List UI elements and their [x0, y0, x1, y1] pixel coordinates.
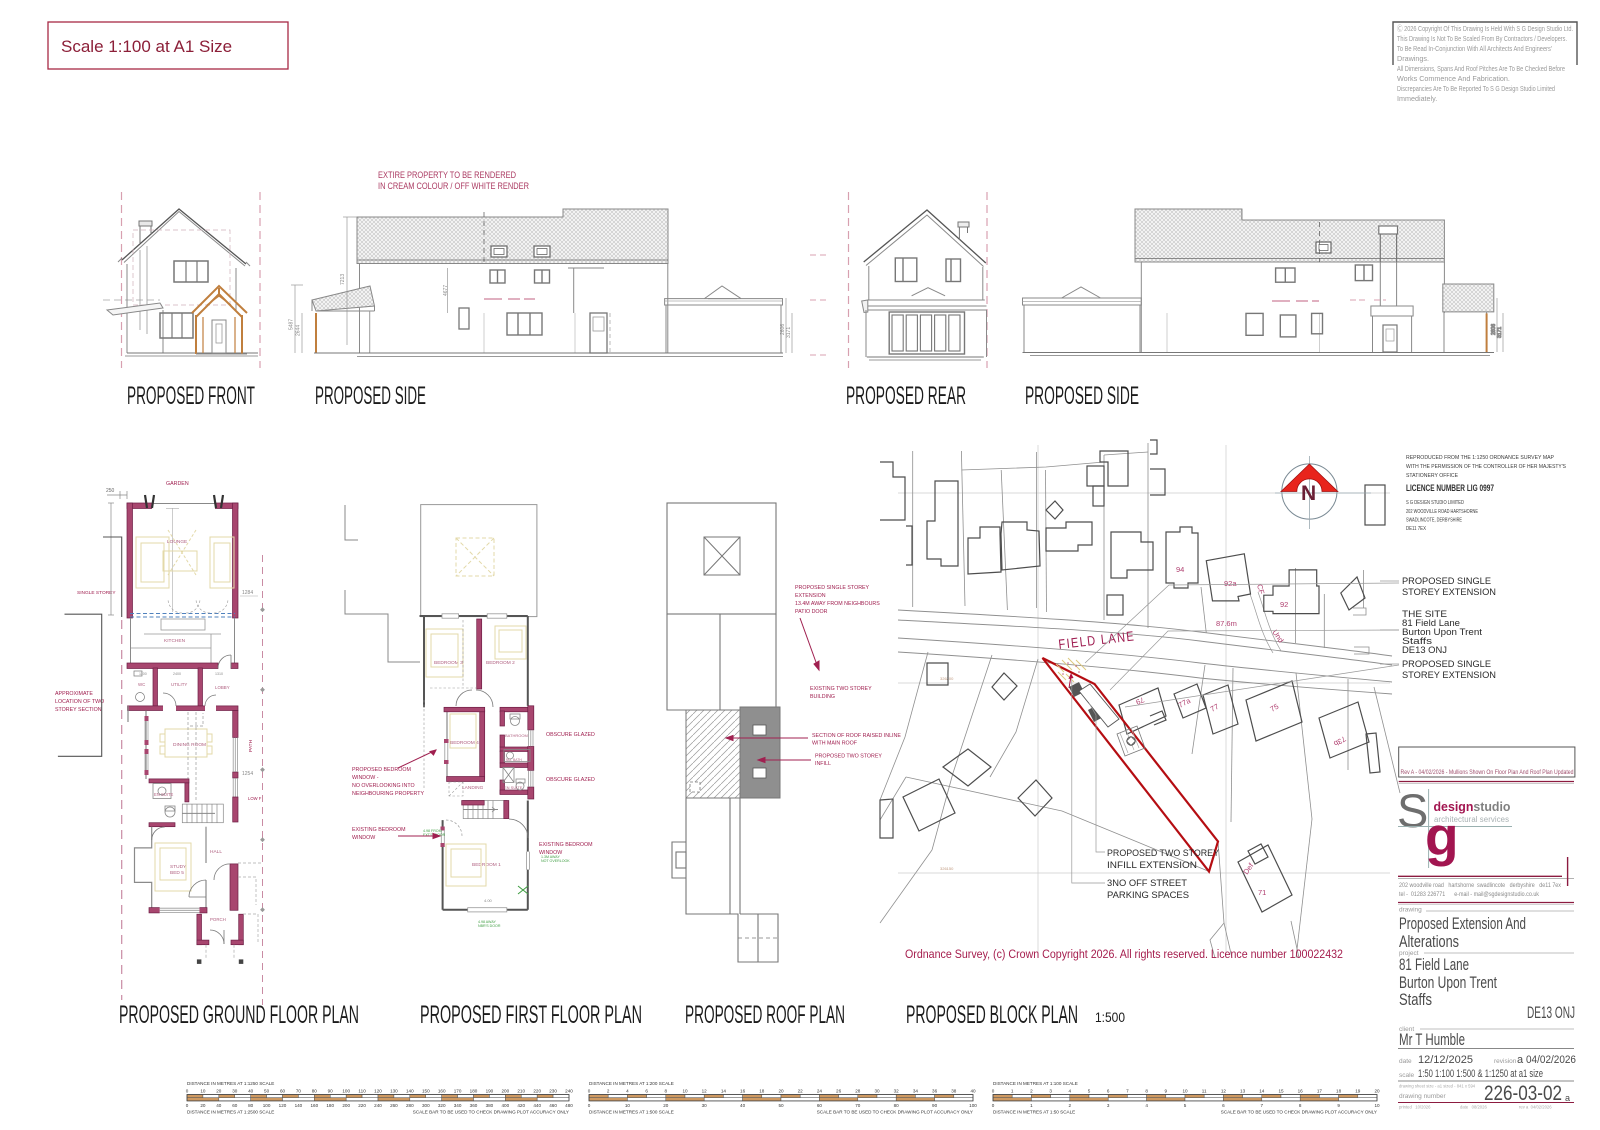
svg-text:date: date	[1399, 1058, 1412, 1065]
svg-text:STUDY: STUDY	[170, 864, 187, 870]
svg-text:1284: 1284	[242, 590, 253, 596]
svg-text:This Drawing Is Not To Be Scal: This Drawing Is Not To Be Scaled From By…	[1397, 34, 1567, 43]
svg-text:240: 240	[565, 1089, 573, 1094]
svg-text:PARKING SPACES: PARKING SPACES	[1107, 890, 1189, 900]
svg-text:71: 71	[1258, 888, 1266, 897]
svg-text:16: 16	[1298, 1089, 1304, 1094]
svg-text:226-03-02: 226-03-02	[1484, 1082, 1562, 1105]
svg-text:EXISTING BEDROOM: EXISTING BEDROOM	[539, 842, 593, 848]
svg-text:tel - 01283 226771 e-mai: tel - 01283 226771 e-mail - mail@sgdesig…	[1399, 891, 1540, 898]
svg-text:SCALE BAR TO BE USED TO CHECK: SCALE BAR TO BE USED TO CHECK DRAWING PL…	[1221, 1110, 1377, 1115]
svg-text:WITH MAIN ROOF: WITH MAIN ROOF	[812, 741, 858, 747]
svg-text:DISTANCE IN METRES AT 1:200 SC: DISTANCE IN METRES AT 1:200 SCALE	[589, 1081, 674, 1086]
svg-text:1:50 1:100 1:500 & 1:1250: 1:50 1:100 1:500 & 1:1250 at a1 size	[1418, 1068, 1543, 1080]
svg-text:8: 8	[665, 1089, 668, 1094]
svg-text:EN SUITE: EN SUITE	[154, 792, 174, 797]
svg-text:PROPOSED BEDROOM: PROPOSED BEDROOM	[352, 767, 411, 773]
svg-text:240: 240	[374, 1103, 382, 1108]
svg-text:DE13 ONJ: DE13 ONJ	[1527, 1004, 1575, 1022]
svg-text:18: 18	[1336, 1089, 1342, 1094]
svg-text:HALL: HALL	[210, 849, 222, 855]
svg-text:Scale 1:100 at A1 Size: Scale 1:100 at A1 Size	[61, 37, 232, 56]
svg-text:PROPOSED BLOCK PLAN: PROPOSED BLOCK PLAN	[906, 1001, 1078, 1029]
svg-text:220: 220	[533, 1089, 541, 1094]
svg-text:130: 130	[390, 1089, 398, 1094]
svg-text:SCALE BAR TO BE USED TO CHECK: SCALE BAR TO BE USED TO CHECK DRAWING PL…	[413, 1110, 569, 1115]
svg-text:12: 12	[702, 1089, 708, 1094]
svg-text:180: 180	[470, 1089, 478, 1094]
svg-text:APPROXIMATE: APPROXIMATE	[55, 691, 93, 697]
svg-text:202 WOODVILLE ROAD HARTSHORNE: 202 WOODVILLE ROAD HARTSHORNE	[1406, 509, 1478, 515]
svg-text:PROPOSED ROOF PLAN: PROPOSED ROOF PLAN	[685, 1001, 845, 1029]
svg-text:EXTENSION: EXTENSION	[795, 593, 826, 599]
svg-text:2: 2	[1069, 1103, 1072, 1108]
svg-text:NEIGHBOURING PROPERTY: NEIGHBOURING PROPERTY	[352, 791, 424, 797]
svg-text:150: 150	[422, 1089, 430, 1094]
svg-text:10: 10	[1374, 1103, 1380, 1108]
svg-text:BEDROOM 4: BEDROOM 4	[450, 740, 479, 746]
svg-text:300: 300	[422, 1103, 430, 1108]
svg-text:0: 0	[186, 1103, 189, 1108]
svg-text:1310: 1310	[215, 672, 223, 676]
svg-text:13: 13	[1240, 1089, 1246, 1094]
svg-text:DISTANCE IN METRES AT 1:2500 S: DISTANCE IN METRES AT 1:2500 SCALE	[187, 1110, 274, 1115]
svg-text:81 Field Lane: 81 Field Lane	[1399, 956, 1469, 974]
svg-text:40: 40	[740, 1103, 746, 1108]
svg-text:KITCHEN: KITCHEN	[164, 638, 186, 644]
svg-text:4677: 4677	[443, 285, 449, 296]
svg-text:PROPOSED SINGLE: PROPOSED SINGLE	[1402, 659, 1491, 670]
svg-text:30: 30	[702, 1103, 708, 1108]
svg-text:Proposed Extension And: Proposed Extension And	[1399, 915, 1526, 933]
svg-text:260: 260	[390, 1103, 398, 1108]
svg-text:INFILL: INFILL	[815, 761, 831, 767]
svg-text:EXISTING TWO STOREY: EXISTING TWO STOREY	[810, 686, 872, 692]
svg-text:OBSCURE GLAZED: OBSCURE GLAZED	[546, 777, 595, 783]
svg-text:20: 20	[1374, 1089, 1380, 1094]
svg-text:140: 140	[295, 1103, 303, 1108]
svg-text:Staffs: Staffs	[1399, 991, 1432, 1009]
svg-text:400: 400	[501, 1103, 509, 1108]
svg-text:date 08/2026: date 08/2026	[1460, 1105, 1487, 1110]
svg-text:PROPOSED FRONT: PROPOSED FRONT	[127, 382, 255, 410]
svg-text:100: 100	[342, 1089, 350, 1094]
svg-text:50: 50	[778, 1103, 784, 1108]
svg-text:drawing: drawing	[1399, 907, 1422, 914]
svg-text:DISTANCE IN METRES AT 1:1250 S: DISTANCE IN METRES AT 1:1250 SCALE	[187, 1081, 274, 1086]
svg-text:1100: 1100	[139, 672, 147, 676]
svg-text:3: 3	[1049, 1089, 1052, 1094]
svg-text:160: 160	[438, 1089, 446, 1094]
svg-text:0: 0	[588, 1103, 591, 1108]
svg-text:BEDROOM 3: BEDROOM 3	[434, 660, 463, 666]
svg-text:WC: WC	[138, 682, 145, 687]
svg-text:0: 0	[186, 1089, 189, 1094]
svg-text:87.6m: 87.6m	[1216, 619, 1237, 628]
svg-text:92a: 92a	[1224, 579, 1237, 588]
svg-text:7: 7	[1261, 1103, 1264, 1108]
svg-text:17: 17	[1317, 1089, 1323, 1094]
svg-text:4: 4	[1069, 1089, 1072, 1094]
svg-text:60: 60	[232, 1103, 238, 1108]
svg-text:SWADLINCOTE, DERBYSHIRE: SWADLINCOTE, DERBYSHIRE	[1406, 518, 1462, 524]
svg-text:BUILDING: BUILDING	[810, 694, 835, 700]
svg-text:22: 22	[798, 1089, 804, 1094]
svg-text:36: 36	[932, 1089, 938, 1094]
svg-text:60: 60	[817, 1103, 823, 1108]
svg-text:g: g	[1425, 805, 1459, 867]
svg-text:Alterations: Alterations	[1399, 933, 1459, 951]
svg-text:SINGLE STOREY: SINGLE STOREY	[77, 590, 116, 596]
svg-text:34: 34	[913, 1089, 919, 1094]
svg-text:9: 9	[1165, 1089, 1168, 1094]
svg-text:NOT OVERLOOK: NOT OVERLOOK	[541, 859, 570, 863]
svg-text:BEDROOM 1: BEDROOM 1	[472, 862, 501, 868]
svg-text:18: 18	[759, 1089, 765, 1094]
svg-text:20: 20	[778, 1089, 784, 1094]
svg-text:BATHROOM: BATHROOM	[505, 733, 528, 738]
svg-text:110: 110	[358, 1089, 366, 1094]
svg-text:PROPOSED TWO STOREY: PROPOSED TWO STOREY	[815, 754, 882, 760]
svg-text:50: 50	[264, 1089, 270, 1094]
svg-text:DISTANCE IN METRES AT 1:500 SC: DISTANCE IN METRES AT 1:500 SCALE	[589, 1110, 674, 1115]
svg-text:170: 170	[454, 1089, 462, 1094]
svg-text:drawing number: drawing number	[1399, 1093, 1446, 1100]
svg-text:320: 320	[438, 1103, 446, 1108]
svg-text:PROPOSED TWO STOREY: PROPOSED TWO STOREY	[1107, 848, 1219, 858]
svg-text:5: 5	[1184, 1103, 1187, 1108]
svg-text:12: 12	[1221, 1089, 1227, 1094]
svg-text:80: 80	[312, 1089, 318, 1094]
svg-text:16: 16	[740, 1089, 746, 1094]
svg-text:SECTION OF ROOF RAISED INLINE: SECTION OF ROOF RAISED INLINE	[812, 733, 901, 739]
svg-text:60: 60	[280, 1089, 286, 1094]
svg-text:0: 0	[992, 1103, 995, 1108]
svg-text:120: 120	[279, 1103, 287, 1108]
svg-text:12/12/2025: 12/12/2025	[1418, 1054, 1473, 1066]
svg-text:NO. BATH: NO. BATH	[506, 758, 522, 762]
svg-text:326150: 326150	[940, 866, 954, 871]
svg-text:a: a	[1565, 1093, 1570, 1103]
svg-text:7213: 7213	[340, 274, 346, 285]
svg-text:24: 24	[817, 1089, 823, 1094]
svg-text:STOREY EXTENSION: STOREY EXTENSION	[1402, 587, 1496, 598]
svg-text:32: 32	[894, 1089, 900, 1094]
svg-text:160: 160	[310, 1103, 318, 1108]
svg-text:200: 200	[342, 1103, 350, 1108]
svg-text:3171: 3171	[1497, 327, 1503, 338]
svg-text:40: 40	[216, 1103, 222, 1108]
svg-text:180: 180	[326, 1103, 334, 1108]
svg-text:3: 3	[1107, 1103, 1110, 1108]
svg-text:BEDROOM 2: BEDROOM 2	[486, 660, 515, 666]
svg-text:90: 90	[932, 1103, 938, 1108]
svg-text:DISTANCE IN METRES AT 1:100 SC: DISTANCE IN METRES AT 1:100 SCALE	[993, 1081, 1078, 1086]
svg-text:26: 26	[836, 1089, 842, 1094]
svg-text:1: 1	[1030, 1103, 1033, 1108]
svg-text:NBR'S DOOR: NBR'S DOOR	[478, 924, 501, 928]
svg-text:70: 70	[296, 1089, 302, 1094]
svg-text:220: 220	[358, 1103, 366, 1108]
svg-text:a: a	[1517, 1054, 1524, 1066]
svg-text:0: 0	[588, 1089, 591, 1094]
svg-text:120: 120	[374, 1089, 382, 1094]
svg-text:100: 100	[263, 1103, 271, 1108]
svg-text:STOREY EXTENSION: STOREY EXTENSION	[1402, 670, 1496, 681]
svg-text:LANDING: LANDING	[462, 785, 484, 791]
svg-text:11: 11	[1202, 1089, 1207, 1094]
svg-text:440: 440	[533, 1103, 541, 1108]
svg-text:4: 4	[626, 1089, 629, 1094]
svg-text:BED 5: BED 5	[170, 870, 184, 876]
svg-text:14: 14	[721, 1089, 727, 1094]
svg-text:5487: 5487	[289, 319, 295, 330]
svg-text:210: 210	[517, 1089, 525, 1094]
svg-text:10: 10	[625, 1103, 631, 1108]
svg-text:WITH THE PERMISSION OF THE CON: WITH THE PERMISSION OF THE CONTROLLER OF…	[1406, 464, 1567, 470]
svg-text:drawing sheet size - a1 sized: drawing sheet size - a1 sized - 841 x 59…	[1399, 1084, 1476, 1089]
svg-text:Ⓒ 2026 Copyright Of This Drawi: Ⓒ 2026 Copyright Of This Drawing Is Held…	[1397, 24, 1573, 33]
svg-text:GARDEN: GARDEN	[166, 481, 189, 487]
svg-text:140: 140	[406, 1089, 414, 1094]
svg-text:2644: 2644	[296, 325, 302, 336]
svg-text:38: 38	[951, 1089, 957, 1094]
svg-text:80: 80	[248, 1103, 254, 1108]
svg-text:WINDOW -: WINDOW -	[352, 775, 379, 781]
svg-text:PATH: PATH	[248, 739, 254, 752]
svg-text:PROPOSED REAR: PROPOSED REAR	[846, 382, 966, 410]
svg-text:Rev A - 04/02/2026 - Mullions: Rev A - 04/02/2026 - Mullions Shown On F…	[1401, 769, 1574, 776]
svg-text:20: 20	[663, 1103, 669, 1108]
svg-text:420: 420	[517, 1103, 525, 1108]
svg-text:OBSCURE GLAZED: OBSCURE GLAZED	[546, 732, 595, 738]
svg-text:revision: revision	[1494, 1058, 1517, 1065]
svg-text:13.4M AWAY FROM NEIGHBOURS: 13.4M AWAY FROM NEIGHBOURS	[795, 601, 880, 607]
svg-text:LICENCE NUMBER LIG 0997: LICENCE NUMBER LIG 0997	[1406, 483, 1494, 493]
svg-text:280: 280	[406, 1103, 414, 1108]
svg-text:EXTIRE PROPERTY TO BE RENDERED: EXTIRE PROPERTY TO BE RENDERED	[378, 170, 516, 181]
svg-text:3NO OFF STREET: 3NO OFF STREET	[1107, 878, 1188, 888]
svg-text:3171: 3171	[786, 327, 792, 338]
svg-text:DE11 7EX: DE11 7EX	[1406, 526, 1426, 532]
svg-text:scale: scale	[1399, 1072, 1415, 1079]
svg-text:0: 0	[992, 1089, 995, 1094]
svg-text:PROPOSED SIDE: PROPOSED SIDE	[315, 382, 426, 410]
svg-text:LOBBY: LOBBY	[215, 685, 230, 690]
svg-text:2400: 2400	[173, 672, 181, 676]
svg-text:1254: 1254	[242, 771, 253, 777]
svg-text:Works Commence And Fabrication: Works Commence And Fabrication.	[1397, 74, 1510, 83]
svg-text:40: 40	[970, 1089, 976, 1094]
svg-text:rev a 04/02/2026: rev a 04/02/2026	[1519, 1105, 1552, 1110]
svg-text:340: 340	[454, 1103, 462, 1108]
svg-text:10: 10	[200, 1089, 206, 1094]
svg-text:WINDOW: WINDOW	[352, 835, 375, 841]
svg-text:printed 10/2026: printed 10/2026	[1399, 1105, 1431, 1110]
svg-text:200: 200	[501, 1089, 509, 1094]
svg-text:Mr T Humble: Mr T Humble	[1399, 1031, 1465, 1049]
svg-text:NO OVERLOOKING INTO: NO OVERLOOKING INTO	[352, 783, 415, 789]
svg-text:PROPOSED FIRST FLOOR PLAN: PROPOSED FIRST FLOOR PLAN	[420, 1001, 642, 1029]
svg-text:STATIONERY OFFICE: STATIONERY OFFICE	[1406, 473, 1459, 479]
svg-text:30: 30	[232, 1089, 238, 1094]
svg-text:STOREY SECTION: STOREY SECTION	[55, 707, 102, 713]
svg-text:30: 30	[874, 1089, 880, 1094]
svg-text:250: 250	[106, 488, 115, 494]
svg-text:PROPOSED SINGLE: PROPOSED SINGLE	[1402, 576, 1491, 587]
svg-text:5: 5	[1088, 1089, 1091, 1094]
svg-text:460: 460	[549, 1103, 557, 1108]
svg-text:SCALE BAR TO BE USED TO CHECK: SCALE BAR TO BE USED TO CHECK DRAWING PL…	[817, 1110, 973, 1115]
svg-text:Burton Upon Trent: Burton Upon Trent	[1399, 974, 1497, 992]
svg-text:WINDOW: WINDOW	[539, 850, 562, 856]
svg-text:Discrepancies Are To Be Report: Discrepancies Are To Be Reported To S G …	[1397, 84, 1555, 93]
svg-text:PROPOSED SINGLE STOREY: PROPOSED SINGLE STOREY	[795, 585, 870, 591]
svg-text:202 woodville road hartshorn: 202 woodville road hartshorne swadlincot…	[1399, 882, 1562, 889]
svg-text:S G DESIGN STUDIO LIMITED: S G DESIGN STUDIO LIMITED	[1406, 500, 1464, 506]
svg-text:6: 6	[645, 1089, 648, 1094]
svg-text:Ordnance Survey, (c) Crown Cop: Ordnance Survey, (c) Crown Copyright 202…	[905, 947, 1343, 961]
svg-text:10: 10	[682, 1089, 688, 1094]
svg-text:DISTANCE IN METRES AT 1:50 SCA: DISTANCE IN METRES AT 1:50 SCALE	[993, 1110, 1075, 1115]
svg-text:4.00: 4.00	[484, 898, 493, 903]
svg-text:INFILL EXTENSION: INFILL EXTENSION	[1107, 860, 1197, 870]
svg-text:IN CREAM COLOUR / OFF WHITE RE: IN CREAM COLOUR / OFF WHITE RENDER	[378, 181, 529, 192]
svg-text:To Be Read In-Conjunction With: To Be Read In-Conjunction With All Archi…	[1397, 44, 1552, 53]
svg-text:PROPOSED GROUND FLOOR PLAN: PROPOSED GROUND FLOOR PLAN	[119, 1001, 359, 1029]
svg-text:2: 2	[607, 1089, 610, 1094]
svg-text:100: 100	[969, 1103, 977, 1108]
svg-text:8: 8	[1299, 1103, 1302, 1108]
svg-text:480: 480	[565, 1103, 573, 1108]
svg-text:DE13 ONJ: DE13 ONJ	[1402, 645, 1447, 656]
svg-text:326200: 326200	[940, 676, 954, 681]
svg-text:04/02/2026: 04/02/2026	[1526, 1054, 1576, 1066]
svg-text:6: 6	[1222, 1103, 1225, 1108]
svg-text:2: 2	[1030, 1089, 1033, 1094]
svg-text:7: 7	[1126, 1089, 1129, 1094]
svg-text:DINING ROOM: DINING ROOM	[173, 742, 206, 748]
svg-text:90: 90	[328, 1089, 334, 1094]
svg-text:230: 230	[549, 1089, 557, 1094]
svg-text:14: 14	[1259, 1089, 1265, 1094]
svg-text:PORCH: PORCH	[210, 917, 226, 922]
svg-text:360: 360	[470, 1103, 478, 1108]
svg-text:PROPOSED SIDE: PROPOSED SIDE	[1025, 382, 1139, 410]
svg-text:1: 1	[1011, 1089, 1014, 1094]
svg-text:EXISTING BEDROOM: EXISTING BEDROOM	[352, 827, 406, 833]
svg-text:EN SUITE: EN SUITE	[504, 785, 523, 790]
svg-text:20: 20	[200, 1103, 206, 1108]
svg-text:19: 19	[1355, 1089, 1361, 1094]
svg-text:UTILITY: UTILITY	[171, 682, 187, 687]
svg-text:20: 20	[216, 1089, 222, 1094]
svg-text:94: 94	[1176, 565, 1184, 574]
svg-text:15: 15	[1278, 1089, 1284, 1094]
svg-text:9: 9	[1337, 1103, 1340, 1108]
svg-text:PATIO DOOR: PATIO DOOR	[795, 609, 828, 615]
svg-text:28: 28	[855, 1089, 861, 1094]
svg-text:40: 40	[248, 1089, 254, 1094]
svg-text:All Dimensions, Spans And Roof: All Dimensions, Spans And Roof Pitches A…	[1397, 64, 1565, 73]
svg-text:6: 6	[1107, 1089, 1110, 1094]
svg-text:380: 380	[486, 1103, 494, 1108]
svg-text:Drawings.: Drawings.	[1397, 54, 1429, 63]
svg-text:8: 8	[1145, 1089, 1148, 1094]
svg-text:80: 80	[894, 1103, 900, 1108]
svg-text:N: N	[1301, 482, 1316, 505]
svg-text:LOW F: LOW F	[248, 796, 262, 801]
svg-text:S: S	[1397, 784, 1428, 837]
svg-text:70: 70	[855, 1103, 861, 1108]
svg-text:1:500: 1:500	[1095, 1009, 1125, 1025]
svg-text:4: 4	[1145, 1103, 1148, 1108]
svg-text:Immediately.: Immediately.	[1397, 94, 1437, 103]
svg-text:190: 190	[486, 1089, 494, 1094]
svg-text:92: 92	[1280, 600, 1288, 609]
svg-text:LOCATION OF TWO: LOCATION OF TWO	[55, 699, 104, 705]
svg-text:REPRODUCED FROM THE 1:1250 ORD: REPRODUCED FROM THE 1:1250 ORDNANCE SURV…	[1406, 455, 1555, 461]
svg-text:10: 10	[1182, 1089, 1188, 1094]
svg-text:LOUNGE: LOUNGE	[167, 539, 187, 545]
